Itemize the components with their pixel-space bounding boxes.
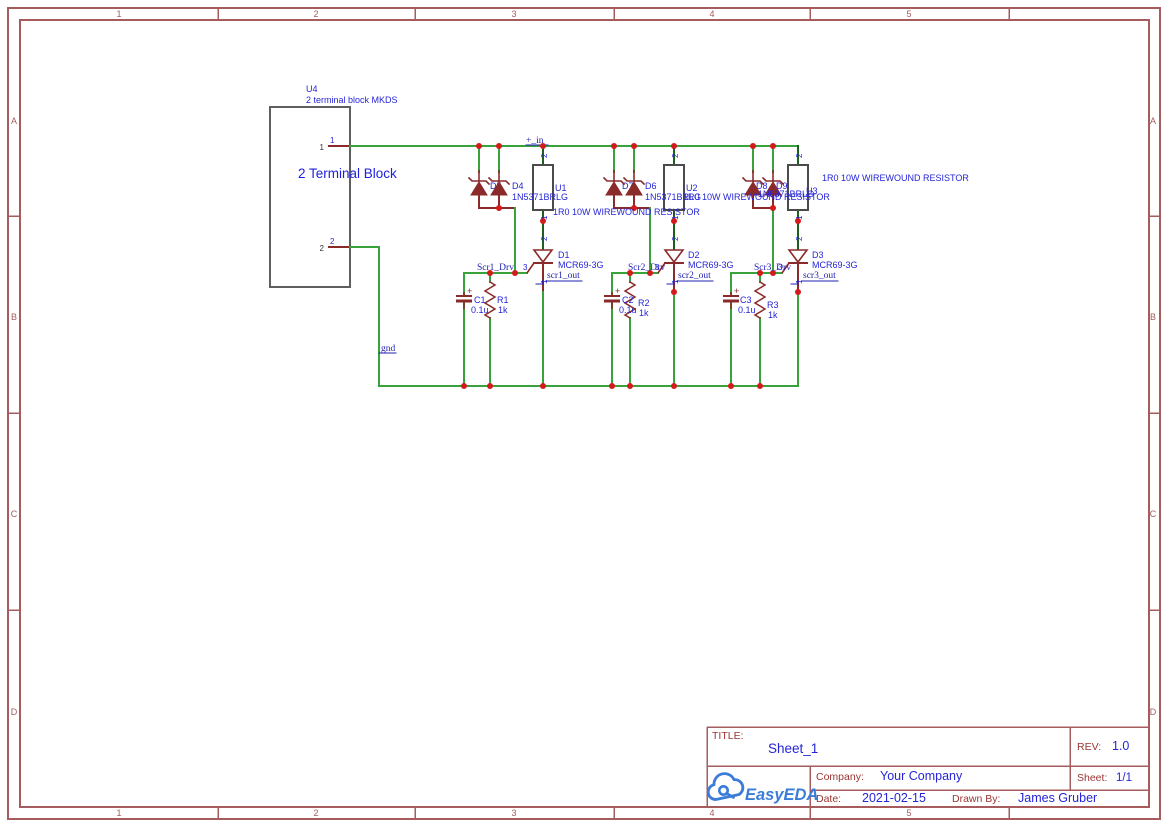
scr-symbol[interactable] [789, 250, 807, 262]
component-label[interactable]: 0.1u [619, 305, 637, 315]
component-label[interactable]: 2 [671, 153, 680, 158]
ruler-column-label: 3 [511, 9, 516, 19]
title-block: TITLE: Sheet_1 REV: 1.0 Company: Your Co… [707, 727, 1149, 807]
component-label[interactable]: 1 [671, 215, 680, 220]
component-label[interactable]: D2 [688, 250, 700, 260]
component-label[interactable]: U4 [306, 84, 318, 94]
component-label[interactable]: 1 [320, 143, 325, 152]
date-label: Date: [816, 793, 841, 805]
ruler-row-label: C [11, 509, 18, 519]
wire-junction-dot [540, 383, 546, 389]
component-label[interactable]: R3 [767, 300, 779, 310]
component-label[interactable]: 1 [330, 136, 335, 145]
wire-junction-dot [487, 383, 493, 389]
component-label[interactable]: C3 [740, 295, 752, 305]
component-label[interactable]: 2 terminal block MKDS [306, 95, 398, 105]
wire-junction-dot [770, 205, 776, 211]
net-label-plus-in[interactable]: +_in [526, 136, 544, 146]
wire-junction-dot [671, 289, 677, 295]
component-label[interactable]: 1k [768, 310, 778, 320]
easyeda-logo: EasyEDA [708, 774, 818, 804]
component-label[interactable]: 1R0 10W WIREWOUND RESISTOR [822, 173, 969, 183]
wirewound-resistor-body[interactable] [788, 165, 808, 210]
ruler-column-label: 2 [313, 9, 318, 19]
terminal-block-body[interactable] [270, 107, 350, 287]
wire-junction-dot [496, 205, 502, 211]
inner-border [20, 20, 1149, 807]
component-label[interactable]: 1k [639, 308, 649, 318]
component-label[interactable]: 2 [540, 153, 549, 158]
rev-value[interactable]: 1.0 [1112, 739, 1129, 753]
component-label[interactable]: R2 [638, 298, 650, 308]
logo-wordmark: EasyEDA [745, 786, 818, 804]
component-label[interactable]: 2 [330, 237, 335, 246]
ruler-column-label: 4 [709, 9, 714, 19]
component-label[interactable]: C1 [474, 295, 486, 305]
net-label-gnd[interactable]: gnd [381, 344, 396, 354]
schematic-sheet[interactable]: 1122334455AABBCCDD TITLE: Sheet_1 REV: 1… [0, 0, 1169, 828]
sheet-label: Sheet: [1077, 772, 1107, 784]
component-label[interactable]: 1 [795, 215, 804, 220]
zener-diode-symbol[interactable] [606, 182, 622, 195]
component-label[interactable]: 1N5371BRLG [512, 192, 568, 202]
wire-junction-dot [770, 143, 776, 149]
component-label[interactable]: R1 [497, 295, 509, 305]
ruler-column-label: 4 [709, 808, 714, 818]
ruler-column-label: 2 [313, 808, 318, 818]
component-label[interactable]: 1 [540, 215, 549, 220]
wire-junction-dot [496, 143, 502, 149]
wire-junction-dot [461, 383, 467, 389]
component-label[interactable]: 3 [523, 263, 528, 272]
capacitor-polarity-plus: + [734, 286, 739, 296]
title-value[interactable]: Sheet_1 [768, 741, 818, 756]
scr-symbol[interactable] [665, 250, 683, 262]
ruler-row-label: A [11, 116, 17, 126]
title-label: TITLE: [712, 730, 744, 742]
drawn-by-value[interactable]: James Gruber [1018, 791, 1097, 805]
date-value[interactable]: 2021-02-15 [862, 791, 926, 805]
component-label[interactable]: D4 [512, 181, 524, 191]
component-label[interactable]: 2 [671, 236, 680, 241]
component-label[interactable]: 2 [795, 236, 804, 241]
wirewound-resistor-body[interactable] [533, 165, 553, 210]
net-label-scr3-out[interactable]: scr3_out [803, 271, 836, 281]
company-value[interactable]: Your Company [880, 769, 963, 783]
wire-junction-dot [631, 143, 637, 149]
drawn-by-label: Drawn By: [952, 793, 1000, 805]
wire-junction-dot [627, 383, 633, 389]
component-label[interactable]: 2 [540, 236, 549, 241]
wire-junction-dot [795, 289, 801, 295]
component-label[interactable]: 2 [320, 244, 325, 253]
capacitor-polarity-plus: + [467, 286, 472, 296]
component-label[interactable]: 0.1u [738, 305, 756, 315]
component-label[interactable]: 1k [498, 305, 508, 315]
ruler-row-label: C [1150, 509, 1157, 519]
ruler-row-label: D [1150, 707, 1157, 717]
wire-junction-dot [611, 143, 617, 149]
ruler-row-label: B [1150, 312, 1156, 322]
net-label-scr2-out[interactable]: scr2_out [678, 271, 711, 281]
component-label[interactable]: MCR69-3G [558, 260, 604, 270]
wire-junction-dot [476, 143, 482, 149]
component-label[interactable]: U1 [555, 183, 567, 193]
resistor-zigzag-symbol[interactable] [755, 282, 765, 318]
net-label-scr1-out[interactable]: scr1_out [547, 271, 580, 281]
scr-symbol[interactable] [534, 250, 552, 262]
component-label[interactable]: MCR69-3G [812, 260, 858, 270]
component-label[interactable]: 0.1u [471, 305, 489, 315]
logo-cloud-icon [708, 774, 743, 800]
company-label: Company: [816, 771, 864, 783]
capacitor-polarity-plus: + [615, 286, 620, 296]
ruler-column-label: 5 [906, 9, 911, 19]
rev-label: REV: [1077, 741, 1101, 753]
ruler-column-label: 3 [511, 808, 516, 818]
ruler-row-label: B [11, 312, 17, 322]
wire-junction-dot [671, 383, 677, 389]
component-label[interactable]: 1R0 10W WIREWOUND RESISTOR [683, 192, 830, 202]
component-label[interactable]: 2 [795, 153, 804, 158]
wire-junction-dot [609, 383, 615, 389]
schematic[interactable]: D5D7D8+++U42 terminal block MKDS2 Termin… [270, 84, 969, 389]
scr-gate-pin[interactable] [527, 263, 534, 273]
net-label-scr1-drv[interactable]: Scr1_Drv [477, 263, 514, 273]
component-label[interactable]: C2 [622, 295, 634, 305]
ruler-column-label: 5 [906, 808, 911, 818]
sheet-value[interactable]: 1/1 [1116, 772, 1132, 784]
net-label-scr3-drv[interactable]: Scr3_Drv [754, 263, 791, 273]
wire-junction-dot [728, 383, 734, 389]
ruler-row-label: A [1150, 116, 1156, 126]
ruler-row-label: D [11, 707, 18, 717]
component-label[interactable]: D6 [645, 181, 657, 191]
component-label[interactable]: MCR69-3G [688, 260, 734, 270]
component-label[interactable]: D1 [558, 250, 570, 260]
component-label[interactable]: 1R0 10W WIREWOUND RESISTOR [553, 207, 700, 217]
net-label-scr2-drv[interactable]: Scr2_Drv [628, 263, 665, 273]
outer-border [8, 8, 1160, 819]
ruler-column-label: 1 [116, 9, 121, 19]
wirewound-resistor-body[interactable] [664, 165, 684, 210]
sheet-frame: 1122334455AABBCCDD [8, 8, 1160, 819]
terminal-block-name[interactable]: 2 Terminal Block [298, 166, 397, 181]
wire-junction-dot [750, 143, 756, 149]
ruler-column-label: 1 [116, 808, 121, 818]
zener-diode-symbol[interactable] [471, 182, 487, 195]
wire-junction-dot [671, 143, 677, 149]
component-label[interactable]: D3 [812, 250, 824, 260]
wire-junction-dot [757, 383, 763, 389]
